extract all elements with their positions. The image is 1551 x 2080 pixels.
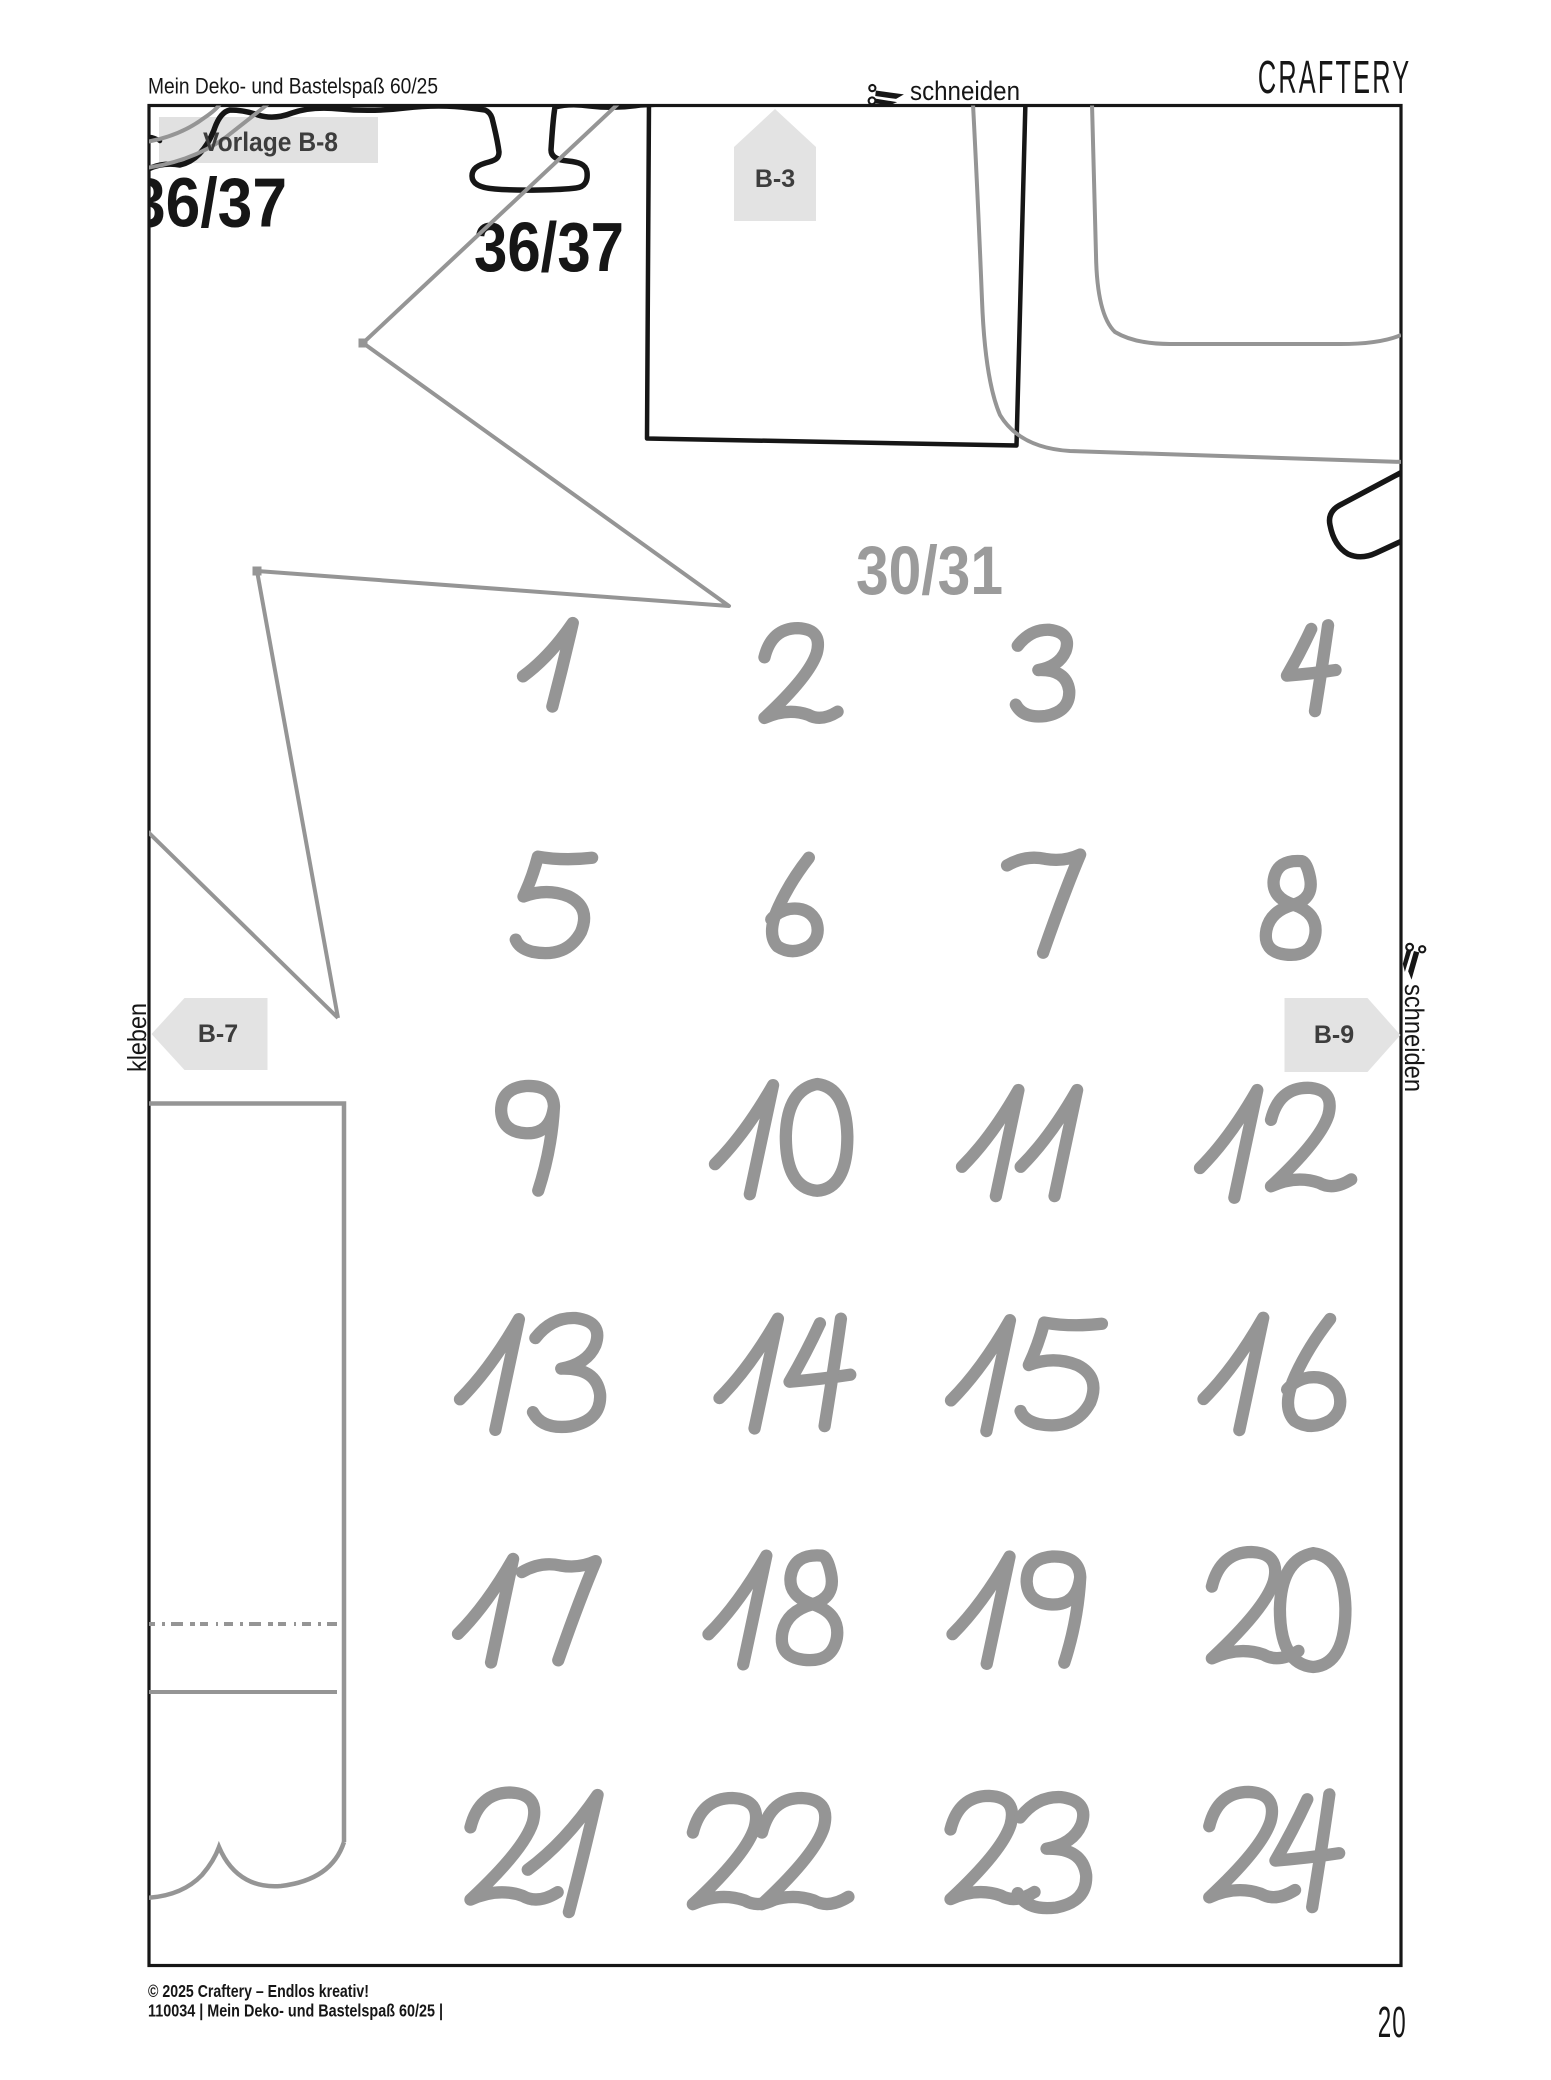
svg-text:Mein Deko- und Bastelspaß 60/2: Mein Deko- und Bastelspaß 60/25 (148, 74, 438, 99)
svg-text:CRAFTERY: CRAFTERY (1258, 51, 1411, 103)
svg-text:30/31: 30/31 (856, 532, 1003, 609)
svg-text:schneiden: schneiden (910, 76, 1020, 106)
svg-text:B-9: B-9 (1314, 1021, 1354, 1049)
svg-text:36/37: 36/37 (131, 164, 287, 242)
svg-text:schneiden: schneiden (1399, 984, 1429, 1092)
svg-text:110034 | Mein Deko- und Bastel: 110034 | Mein Deko- und Bastelspaß 60/25… (148, 2001, 443, 2021)
svg-text:Vorlage B-8: Vorlage B-8 (203, 127, 338, 157)
svg-text:20: 20 (1378, 1997, 1407, 2047)
svg-text:B-3: B-3 (755, 165, 795, 193)
svg-text:B-7: B-7 (198, 1020, 238, 1048)
svg-text:kleben: kleben (122, 1003, 152, 1072)
svg-text:© 2025 Craftery – Endlos kreat: © 2025 Craftery – Endlos kreativ! (148, 1981, 369, 2001)
